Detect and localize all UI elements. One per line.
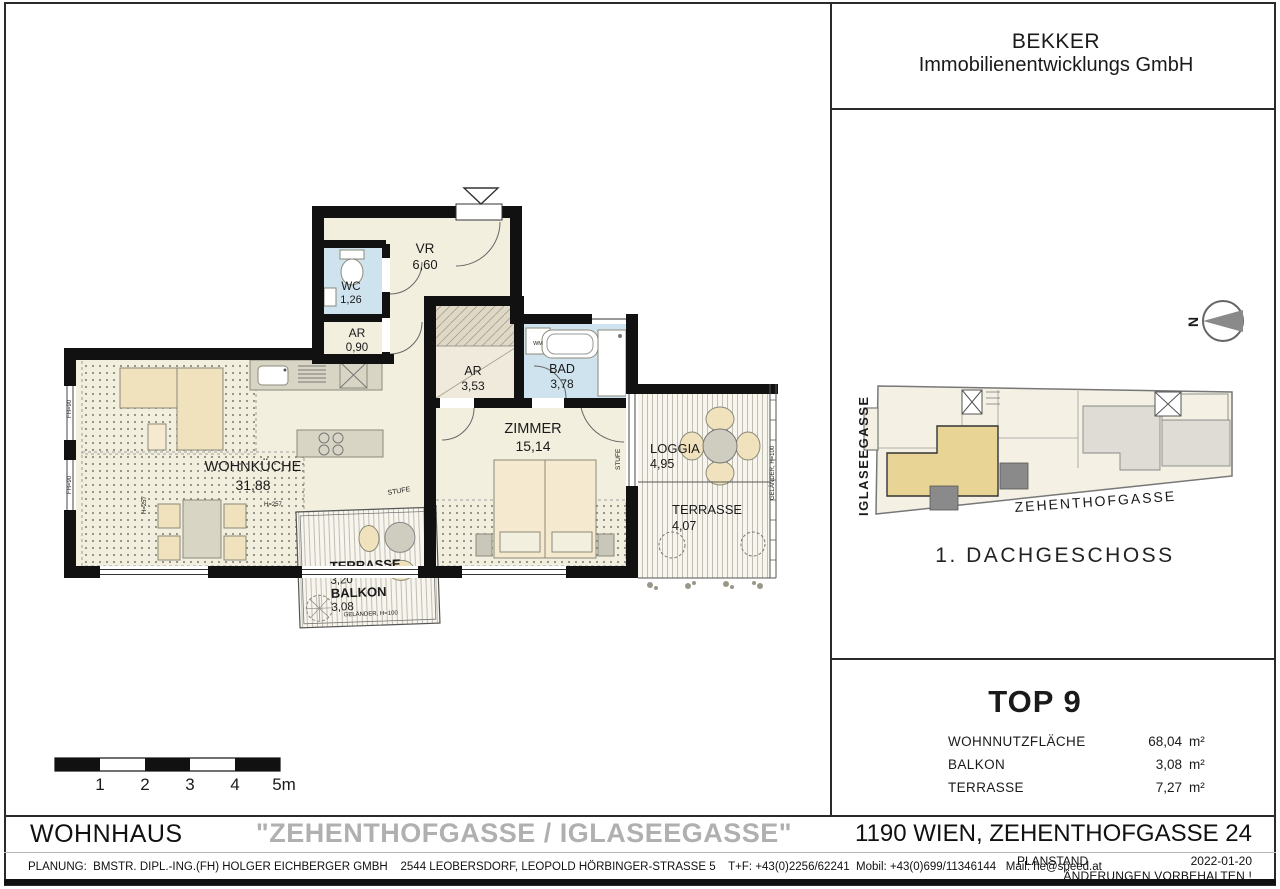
siteplan-drawing: N bbox=[830, 108, 1280, 658]
floorplan-drawing: TERRASSE 3,20 BALKON 3,08 GELÄNDER, H=10… bbox=[0, 0, 830, 815]
divider-above-title-bar bbox=[4, 815, 1276, 817]
unit-row-unit: m² bbox=[1189, 780, 1205, 795]
divider-under-company bbox=[830, 108, 1276, 110]
unit-row-label: BALKON bbox=[948, 757, 1120, 772]
title-bar: WOHNHAUS "ZEHENTHOFGASSE / IGLASEEGASSE"… bbox=[4, 817, 1276, 852]
h257-label-1: H=257 bbox=[142, 495, 148, 514]
scale-bar: 1 2 3 4 5m bbox=[55, 758, 296, 794]
fh90-label-2: FH=90 bbox=[67, 475, 73, 494]
unit-row-unit: m² bbox=[1189, 757, 1205, 772]
loggia-railing-label: GELÄNDER, H=100 bbox=[769, 445, 776, 500]
unit-row-label: WOHNNUTZFLÄCHE bbox=[948, 734, 1120, 749]
company-header: BEKKER Immobilienentwicklungs GmbH bbox=[832, 0, 1280, 108]
building-footprint bbox=[864, 386, 1232, 514]
room-wohnkueche-label: WOHNKÜCHE bbox=[205, 457, 302, 475]
project-name-label: "ZEHENTHOFGASSE / IGLASEEGASSE" bbox=[244, 818, 804, 849]
north-arrow-icon: N bbox=[1185, 301, 1243, 341]
scale-tick-1: 1 bbox=[95, 775, 104, 794]
h257-label-2: H=257 bbox=[264, 502, 283, 508]
room-ar1-label: AR bbox=[349, 326, 366, 340]
room-terrasse1-area: 4,07 bbox=[672, 519, 696, 533]
scale-tick-2: 2 bbox=[140, 775, 149, 794]
level-label: 1. DACHGESCHOSS bbox=[830, 544, 1280, 568]
scale-tick-5: 5m bbox=[272, 775, 296, 794]
plants bbox=[647, 581, 763, 590]
company-type: Immobilienentwicklungs GmbH bbox=[832, 54, 1280, 77]
unit-row-terrasse: TERRASSE 7,27 m² bbox=[948, 780, 1253, 795]
bottom-black-bar bbox=[4, 879, 1276, 885]
company-name: BEKKER bbox=[832, 30, 1280, 54]
room-terrasse1-label: TERRASSE bbox=[672, 502, 742, 517]
room-ar2-area: 3,53 bbox=[461, 379, 485, 393]
room-zimmer-label: ZIMMER bbox=[504, 421, 561, 437]
street-left-label: IGLASEEGASSE bbox=[856, 395, 871, 516]
unit-info: TOP 9 WOHNNUTZFLÄCHE 68,04 m² BALKON 3,0… bbox=[830, 658, 1280, 815]
north-letter: N bbox=[1185, 317, 1201, 327]
planstand-label: PLANSTAND bbox=[1017, 854, 1088, 868]
room-wc-area: 1,26 bbox=[340, 294, 361, 306]
unit-row-label: TERRASSE bbox=[948, 780, 1120, 795]
room-ar2-label: AR bbox=[464, 364, 481, 378]
unit-row-wohnnutzflaeche: WOHNNUTZFLÄCHE 68,04 m² bbox=[948, 734, 1253, 749]
room-zimmer-area: 15,14 bbox=[515, 438, 550, 454]
room-loggia-label: LOGGIA bbox=[650, 441, 700, 456]
unit-title: TOP 9 bbox=[830, 684, 1240, 720]
planstand-date: 2022-01-20 bbox=[1191, 854, 1252, 868]
room-loggia-area: 4,95 bbox=[650, 457, 674, 471]
balkon-label: BALKON bbox=[331, 584, 387, 601]
room-bad-area: 3,78 bbox=[550, 377, 574, 391]
planner-info: PLANUNG: BMSTR. DIPL.-ING.(FH) HOLGER EI… bbox=[28, 861, 1102, 873]
room-vr-area: 6,60 bbox=[412, 257, 437, 272]
room-vr-label: VR bbox=[416, 241, 435, 256]
room-wc-label: WC bbox=[341, 281, 360, 293]
footer: PLANUNG: BMSTR. DIPL.-ING.(FH) HOLGER EI… bbox=[4, 853, 1276, 879]
divider-above-footer bbox=[4, 852, 1276, 853]
fh90-label-1: FH=90 bbox=[67, 399, 73, 418]
project-address-label: 1190 WIEN, ZEHENTHOFGASSE 24 bbox=[855, 820, 1252, 848]
panel-divider-vertical bbox=[830, 2, 832, 816]
unit-row-unit: m² bbox=[1189, 734, 1205, 749]
room-ar1-area: 0,90 bbox=[346, 342, 368, 354]
divider-above-unit-info bbox=[830, 658, 1276, 660]
unit-row-value: 68,04 bbox=[1120, 734, 1182, 749]
wm-label: WM bbox=[533, 341, 543, 347]
room-wohnkueche-area: 31,88 bbox=[235, 477, 270, 493]
entrance-marker-icon bbox=[464, 188, 498, 204]
project-type-label: WOHNHAUS bbox=[30, 820, 183, 849]
room-bad-label: BAD bbox=[549, 362, 575, 376]
unit-row-value: 3,08 bbox=[1120, 757, 1182, 772]
scale-tick-4: 4 bbox=[230, 775, 239, 794]
unit-row-value: 7,27 bbox=[1120, 780, 1182, 795]
scale-tick-3: 3 bbox=[185, 775, 194, 794]
floorplan-sheet: TERRASSE 3,20 BALKON 3,08 GELÄNDER, H=10… bbox=[0, 0, 1280, 889]
stufe-label-1: STUFE bbox=[615, 448, 622, 470]
unit-row-balkon: BALKON 3,08 m² bbox=[948, 757, 1253, 772]
